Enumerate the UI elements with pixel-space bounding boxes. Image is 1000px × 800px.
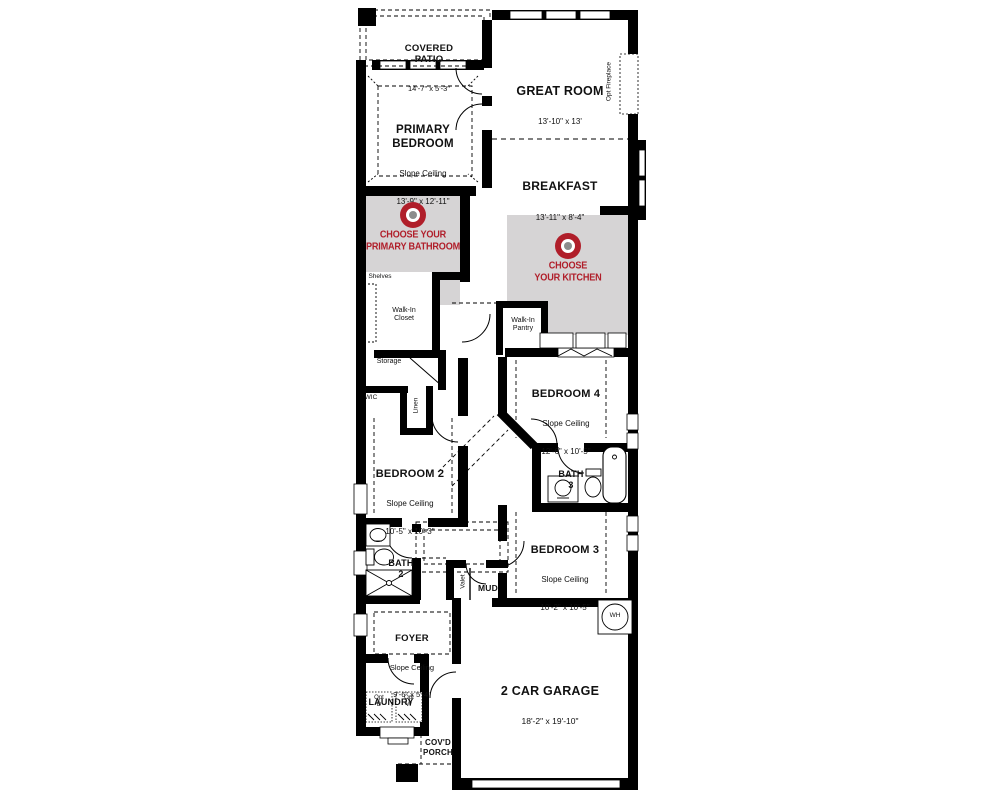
room-sub: Slope Ceiling [372, 664, 452, 673]
floor-plan: COVERED PATIO 14'-7" x 5'-3" GREAT ROOM … [0, 0, 1000, 800]
room-sub: Slope Ceiling [357, 499, 463, 508]
room-name: MUD [468, 584, 508, 594]
room-label-garage: 2 CAR GARAGE 18'-2" x 19'-10" [468, 666, 632, 745]
room-sub: Slope Ceiling [503, 575, 627, 584]
linen-label: Linen [412, 388, 419, 424]
valet-label: Valet [459, 565, 466, 599]
room-label-great-room: GREAT ROOM 13'-10" x 13' [497, 66, 623, 145]
room-name: 2 CAR GARAGE [468, 684, 632, 698]
wic-label: WIC [356, 394, 386, 401]
room-name: BEDROOM 4 [505, 388, 627, 401]
room-dims: 14'-7" x 5'-3" [372, 85, 486, 94]
room-name: FOYER [372, 634, 452, 645]
badge-text: CHOOSE YOUR PRIMARY BATHROOM [366, 230, 460, 253]
room-name: COVERED PATIO [372, 44, 486, 66]
choose-kitchen-badge[interactable]: CHOOSE YOUR KITCHEN [514, 233, 622, 283]
storage-label: Storage [366, 358, 412, 366]
water-heater-label: WH [601, 612, 629, 619]
opt-dryer-label: Opt D [366, 695, 392, 708]
room-label-bath2: BATH 2 [381, 540, 421, 597]
room-name: GREAT ROOM [497, 84, 623, 98]
room-label-mud: MUD [468, 566, 508, 613]
room-dims: 13'-10" x 13' [497, 117, 623, 126]
target-icon [400, 202, 426, 228]
room-label-bath3: BATH 3 [549, 451, 593, 508]
walk-in-pantry-label: Walk-In Pantry [501, 317, 545, 332]
choose-primary-bathroom-badge[interactable]: CHOOSE YOUR PRIMARY BATHROOM [361, 202, 465, 252]
kitchen-counter [540, 333, 626, 348]
room-dims: 10'-2" x 10'-5" [503, 603, 627, 612]
room-label-breakfast: BREAKFAST 13'-11" x 8'-4" [495, 162, 625, 240]
room-label-covd-porch: COV'D PORCH [415, 720, 461, 775]
garage-door [472, 780, 620, 788]
room-name: PRIMARY BEDROOM [368, 124, 478, 150]
room-name: BREAKFAST [495, 180, 625, 194]
room-sub: Slope Ceiling [505, 419, 627, 428]
walk-in-closet-label: Walk-In Closet [378, 307, 430, 322]
room-dims: 18'-2" x 19'-10" [468, 717, 632, 727]
room-name: BATH 3 [549, 469, 593, 490]
target-icon [555, 233, 581, 259]
room-name: BEDROOM 3 [503, 544, 627, 557]
shelves-label: Shelves [358, 273, 402, 280]
room-sub: Slope Ceiling [368, 169, 478, 178]
room-label-bedroom2: BEDROOM 2 Slope Ceiling 10'-5" x 10'-3" [357, 450, 463, 555]
room-name: BEDROOM 2 [357, 468, 463, 481]
opt-washer-label: Opt W [396, 695, 422, 708]
room-dims: 10'-5" x 10'-3" [357, 527, 463, 536]
badge-text: CHOOSE YOUR KITCHEN [534, 261, 601, 284]
room-name: BATH 2 [381, 558, 421, 579]
opt-fireplace-label: Opt Fireplace [605, 54, 612, 110]
room-dims: 13'-11" x 8'-4" [495, 213, 625, 222]
room-label-covered-patio: COVERED PATIO 14'-7" x 5'-3" [372, 26, 486, 112]
room-name: COV'D PORCH [415, 738, 461, 756]
